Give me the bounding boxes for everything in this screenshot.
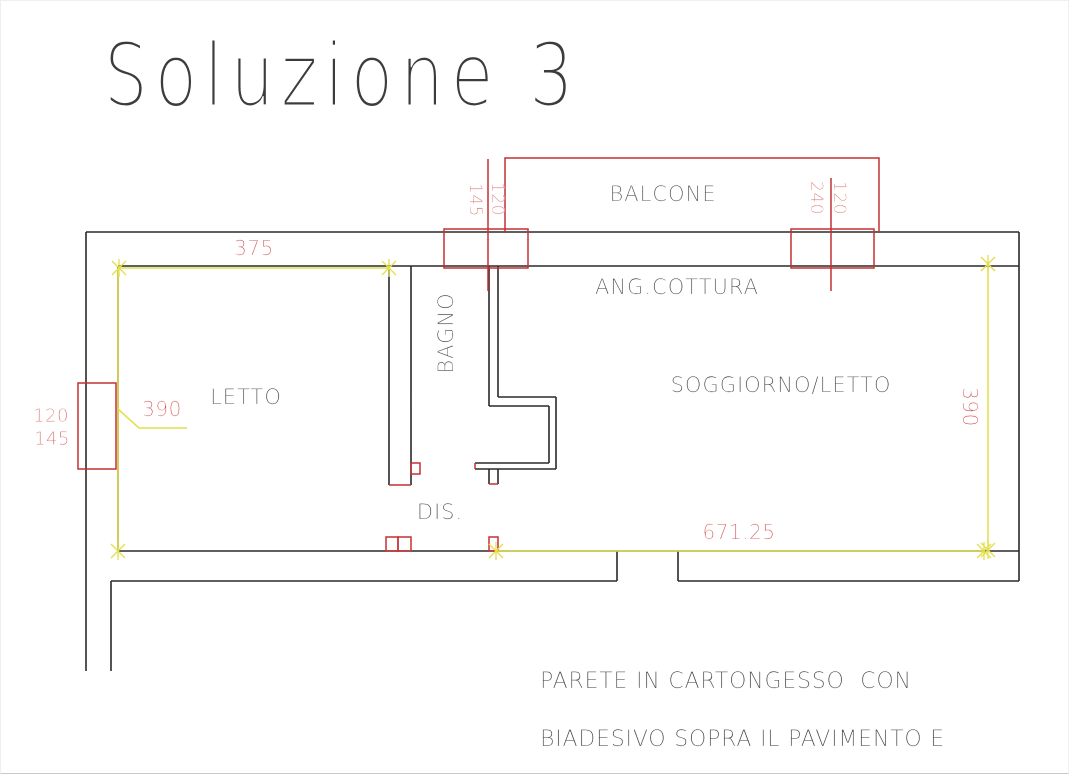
balcony-window-left bbox=[444, 229, 528, 268]
floor-plan-page: Soluzione 3 BALCONE ANG.COTTURA BAGNO LE… bbox=[0, 0, 1069, 774]
dim-letto-width: 375 bbox=[234, 236, 274, 260]
balcony-door-right bbox=[791, 229, 874, 268]
room-label-dis: DIS. bbox=[417, 500, 463, 524]
room-label-letto: LETTO bbox=[210, 385, 282, 409]
wall-end-caps bbox=[389, 463, 498, 485]
room-label-bagno: BAGNO bbox=[434, 292, 458, 373]
dim-letto-height: 390 bbox=[142, 397, 182, 421]
room-label-balcone: BALCONE bbox=[610, 182, 717, 206]
door-jamb-notch bbox=[411, 463, 420, 474]
dim-balcony-window-height: 145 bbox=[465, 183, 485, 217]
dim-soggiorno-height: 390 bbox=[958, 387, 982, 427]
window-centerlines bbox=[488, 159, 831, 291]
dim-balcony-door-height: 240 bbox=[806, 181, 826, 215]
dim-balcony-window-width: 120 bbox=[487, 182, 507, 216]
room-label-ang-cottura: ANG.COTTURA bbox=[595, 275, 759, 299]
drawing-title: Soluzione 3 bbox=[104, 33, 581, 119]
note-line-2: BIADESIVO SOPRA IL PAVIMENTO E bbox=[540, 727, 945, 752]
new-wall-stub-a bbox=[386, 537, 398, 551]
construction-note: PARETE IN CARTONGESSO CON BIADESIVO SOPR… bbox=[540, 667, 945, 774]
dim-soggiorno-width: 671.25 bbox=[703, 520, 776, 544]
bagno-walls bbox=[389, 266, 556, 485]
walls bbox=[86, 232, 1019, 671]
dim-left-window-width: 120 bbox=[33, 406, 69, 427]
left-wall-window bbox=[78, 383, 116, 469]
dim-balcony-door-width: 120 bbox=[829, 181, 849, 215]
room-label-soggiorno: SOGGIORNO/LETTO bbox=[671, 373, 892, 397]
note-line-1: PARETE IN CARTONGESSO CON bbox=[540, 669, 912, 694]
dim-left-window-height: 145 bbox=[34, 429, 70, 450]
new-wall-stub-b bbox=[398, 537, 411, 551]
